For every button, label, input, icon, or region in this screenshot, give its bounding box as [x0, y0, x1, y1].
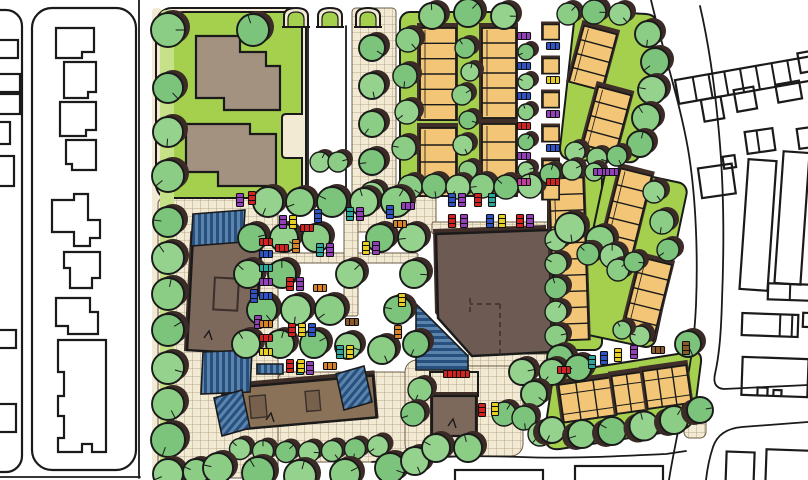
- parked-car: [606, 169, 619, 176]
- parked-car: [280, 216, 287, 229]
- parked-car: [324, 363, 337, 370]
- tree-canopy: [359, 149, 385, 175]
- tree-canopy: [203, 453, 233, 480]
- car-body: [363, 242, 370, 255]
- parked-car: [459, 194, 466, 207]
- tree-canopy: [152, 314, 184, 346]
- car-body: [517, 215, 524, 228]
- car-body: [589, 356, 596, 369]
- car-body: [547, 145, 560, 152]
- tree-canopy: [657, 239, 679, 261]
- parked-car: [315, 210, 322, 223]
- tree-canopy: [609, 3, 631, 25]
- parked-car: [518, 93, 531, 100]
- tree-canopy: [286, 188, 314, 216]
- roof-element: [249, 395, 267, 418]
- car-body: [315, 210, 322, 223]
- tree-canopy: [545, 301, 567, 323]
- parked-car: [518, 63, 531, 70]
- garage-unit: [541, 90, 560, 109]
- parked-car: [387, 206, 394, 219]
- car-body: [346, 319, 359, 326]
- tree-canopy: [234, 260, 262, 288]
- parked-car: [307, 362, 314, 375]
- parked-car: [518, 123, 531, 130]
- car-body: [357, 208, 364, 221]
- tree-canopy: [396, 28, 420, 52]
- tree-canopy: [422, 434, 450, 462]
- parked-car: [237, 194, 244, 207]
- parked-car: [547, 43, 560, 50]
- parked-car: [547, 111, 560, 118]
- parked-car: [518, 179, 531, 186]
- parked-car: [347, 208, 354, 221]
- parked-car: [652, 347, 665, 354]
- row-body: [559, 378, 616, 423]
- tree-canopy: [641, 48, 669, 76]
- car-body: [260, 239, 273, 246]
- parked-car: [394, 221, 407, 228]
- car-body: [518, 123, 531, 130]
- car-body: [347, 208, 354, 221]
- tree-canopy: [545, 253, 567, 275]
- parked-car: [251, 290, 258, 303]
- tree-canopy: [152, 160, 184, 192]
- car-body: [594, 169, 607, 176]
- parked-car: [314, 285, 327, 292]
- tree-canopy: [242, 457, 274, 480]
- tree-canopy: [153, 117, 183, 147]
- tree-canopy: [454, 0, 482, 27]
- tree-canopy: [237, 14, 269, 46]
- car-body: [301, 225, 314, 232]
- parked-car: [499, 215, 506, 228]
- tree-canopy: [613, 321, 631, 339]
- tree-canopy: [518, 74, 534, 90]
- tree-canopy: [545, 277, 567, 299]
- context-division-line: [780, 314, 781, 336]
- car-body: [260, 321, 273, 328]
- parked-car: [289, 324, 296, 337]
- parked-car: [402, 203, 415, 210]
- car-body: [251, 290, 258, 303]
- tree-canopy: [635, 21, 661, 47]
- car-body: [373, 242, 380, 255]
- tree-canopy: [359, 35, 385, 61]
- parked-car: [260, 265, 273, 272]
- tree-canopy: [400, 260, 428, 288]
- garage-unit: [541, 22, 560, 41]
- parked-car: [594, 169, 607, 176]
- tree-canopy: [539, 417, 565, 443]
- parked-car: [260, 335, 273, 342]
- parked-car: [615, 349, 622, 362]
- parked-car: [260, 239, 273, 246]
- tree-canopy: [151, 423, 185, 457]
- tree-sketch-tick: [470, 187, 477, 188]
- car-body: [337, 346, 344, 359]
- tree-canopy: [518, 44, 534, 60]
- parked-car: [631, 346, 638, 359]
- tree-canopy: [153, 207, 183, 237]
- parked-car: [290, 216, 297, 229]
- tree-canopy: [624, 252, 644, 272]
- hand-drawn-site-plan: [0, 0, 808, 480]
- car-body: [293, 240, 300, 253]
- garage-unit: [541, 56, 560, 75]
- site-plan-stage: [0, 0, 808, 480]
- car-body: [260, 279, 273, 286]
- parked-car: [260, 321, 273, 328]
- car-body: [309, 324, 316, 337]
- car-body: [249, 192, 256, 205]
- tree-canopy: [322, 441, 343, 462]
- tree-canopy: [454, 434, 482, 462]
- parked-car: [683, 342, 690, 355]
- tree-canopy: [330, 459, 360, 480]
- parked-car: [260, 349, 273, 356]
- tree-canopy: [398, 224, 426, 252]
- parked-car: [457, 371, 470, 378]
- parked-car: [461, 215, 468, 228]
- townhouse-row: [479, 23, 518, 119]
- car-body: [280, 216, 287, 229]
- car-body: [260, 265, 273, 272]
- car-body: [547, 179, 560, 186]
- car-body: [449, 215, 456, 228]
- tree-sketch-tick: [167, 139, 168, 147]
- tree-canopy: [459, 111, 477, 129]
- parked-car: [399, 294, 406, 307]
- roof-element: [305, 390, 321, 411]
- striped-canopy: [257, 364, 283, 374]
- parked-car: [547, 179, 560, 186]
- car-body: [276, 245, 289, 252]
- car-body: [327, 244, 334, 257]
- parked-car: [301, 225, 314, 232]
- tree-canopy: [650, 210, 674, 234]
- car-body: [527, 215, 534, 228]
- context-division-line: [790, 284, 791, 300]
- tree-canopy: [408, 378, 432, 402]
- parked-car: [260, 279, 273, 286]
- parked-car: [347, 346, 354, 359]
- car-body: [601, 352, 608, 365]
- parked-car: [249, 192, 256, 205]
- tree-canopy: [632, 104, 660, 132]
- car-body: [399, 294, 406, 307]
- parked-car: [287, 360, 294, 373]
- parked-car: [260, 251, 273, 258]
- car-body: [459, 194, 466, 207]
- tree-canopy: [638, 76, 666, 104]
- parked-car: [547, 145, 560, 152]
- tree-canopy: [453, 135, 473, 155]
- garage-body: [543, 25, 559, 40]
- parked-car: [297, 278, 304, 291]
- parked-car: [293, 240, 300, 253]
- car-body: [314, 285, 327, 292]
- tree-canopy: [401, 402, 425, 426]
- car-body: [475, 194, 482, 207]
- parked-car: [276, 245, 289, 252]
- parked-car: [589, 356, 596, 369]
- tree-canopy: [152, 242, 184, 274]
- tree-canopy: [375, 453, 405, 480]
- car-body: [558, 367, 571, 374]
- curb-bulb-lawn: [360, 12, 376, 27]
- parked-car: [449, 194, 456, 207]
- parked-car: [260, 293, 273, 300]
- tree-canopy: [568, 420, 596, 448]
- car-body: [518, 179, 531, 186]
- car-body: [547, 111, 560, 118]
- tree-canopy: [232, 330, 260, 358]
- tree-canopy: [422, 174, 446, 198]
- car-body: [518, 63, 531, 70]
- car-body: [547, 77, 560, 84]
- tree-canopy: [368, 336, 396, 364]
- car-body: [487, 215, 494, 228]
- tree-canopy: [598, 417, 626, 445]
- tree-canopy: [521, 381, 547, 407]
- car-body: [449, 194, 456, 207]
- car-body: [299, 324, 306, 337]
- car-body: [289, 324, 296, 337]
- car-body: [237, 194, 244, 207]
- tree-canopy: [253, 187, 283, 217]
- car-body: [518, 93, 531, 100]
- parked-car: [601, 352, 608, 365]
- tree-sketch-tick: [404, 81, 405, 88]
- car-body: [260, 335, 273, 342]
- car-body: [394, 221, 407, 228]
- parked-car: [317, 244, 324, 257]
- parked-car: [373, 242, 380, 255]
- tree-canopy: [687, 397, 713, 423]
- parked-car: [547, 77, 560, 84]
- garage-body: [543, 127, 559, 142]
- tree-canopy: [328, 152, 348, 172]
- parked-car: [517, 215, 524, 228]
- car-body: [499, 215, 506, 228]
- curb-bulb-lawn: [322, 12, 338, 27]
- car-body: [287, 278, 294, 291]
- car-body: [615, 349, 622, 362]
- parked-car: [475, 194, 482, 207]
- car-body: [518, 33, 531, 40]
- parked-car: [492, 403, 499, 416]
- curb-bulb-layer: [282, 8, 382, 27]
- car-body: [606, 169, 619, 176]
- tree-canopy: [395, 100, 419, 124]
- tree-canopy: [359, 73, 385, 99]
- tree-canopy: [643, 181, 665, 203]
- car-body: [489, 194, 496, 207]
- car-body: [287, 360, 294, 373]
- tree-canopy: [555, 213, 585, 243]
- car-body: [518, 153, 531, 160]
- car-body: [260, 349, 273, 356]
- tree-canopy: [153, 73, 183, 103]
- garage-unit: [541, 124, 560, 143]
- car-body: [387, 206, 394, 219]
- parked-car: [309, 324, 316, 337]
- parked-car: [287, 278, 294, 291]
- tree-canopy: [281, 295, 311, 325]
- car-body: [479, 404, 486, 417]
- parked-car: [298, 360, 305, 373]
- tree-canopy: [152, 278, 184, 310]
- parked-car: [327, 244, 334, 257]
- tree-canopy: [152, 388, 184, 420]
- row-body: [643, 365, 692, 409]
- tree-sketch-tick: [398, 239, 406, 240]
- tree-canopy: [518, 134, 534, 150]
- car-body: [547, 43, 560, 50]
- car-body: [444, 371, 457, 378]
- curb-bulb-lawn: [288, 12, 304, 27]
- parked-car: [487, 215, 494, 228]
- car-body: [402, 203, 415, 210]
- tree-canopy: [315, 295, 345, 325]
- striped-canopy: [191, 210, 245, 246]
- car-body: [461, 215, 468, 228]
- parked-car: [558, 367, 571, 374]
- parked-car: [449, 215, 456, 228]
- tree-canopy: [403, 331, 429, 357]
- car-body: [297, 278, 304, 291]
- tree-canopy: [630, 412, 659, 441]
- kiosk-building: [432, 396, 476, 436]
- car-body: [492, 403, 499, 416]
- car-body: [324, 363, 337, 370]
- parked-car: [444, 371, 457, 378]
- parked-car: [299, 324, 306, 337]
- tree-canopy: [153, 459, 183, 480]
- tree-canopy: [310, 152, 330, 172]
- parked-car: [518, 33, 531, 40]
- parked-car: [395, 326, 402, 339]
- car-body: [631, 346, 638, 359]
- tree-canopy: [494, 175, 518, 199]
- car-body: [457, 371, 470, 378]
- tree-canopy: [359, 111, 385, 137]
- car-body: [298, 360, 305, 373]
- car-body: [260, 251, 273, 258]
- car-body: [395, 326, 402, 339]
- parked-car: [527, 215, 534, 228]
- garage-body: [543, 59, 559, 74]
- parked-car: [363, 242, 370, 255]
- tree-canopy: [392, 136, 416, 160]
- tree-canopy: [562, 160, 582, 180]
- tree-canopy: [393, 64, 417, 88]
- parked-car: [489, 194, 496, 207]
- parked-car: [346, 319, 359, 326]
- parked-car: [518, 153, 531, 160]
- tree-canopy: [455, 38, 475, 58]
- car-body: [307, 362, 314, 375]
- context-division-line: [792, 315, 793, 337]
- parked-car: [479, 404, 486, 417]
- car-body: [260, 293, 273, 300]
- tree-canopy: [607, 146, 627, 166]
- car-body: [652, 347, 665, 354]
- tree-canopy: [461, 63, 479, 81]
- garage-body: [543, 93, 559, 108]
- townhouse-row: [555, 372, 618, 424]
- parked-car: [357, 208, 364, 221]
- car-body: [290, 216, 297, 229]
- parked-car: [337, 346, 344, 359]
- car-body: [317, 244, 324, 257]
- tree-canopy: [152, 352, 184, 384]
- tree-canopy: [518, 104, 534, 120]
- tree-canopy: [452, 85, 472, 105]
- car-body: [347, 346, 354, 359]
- car-body: [683, 342, 690, 355]
